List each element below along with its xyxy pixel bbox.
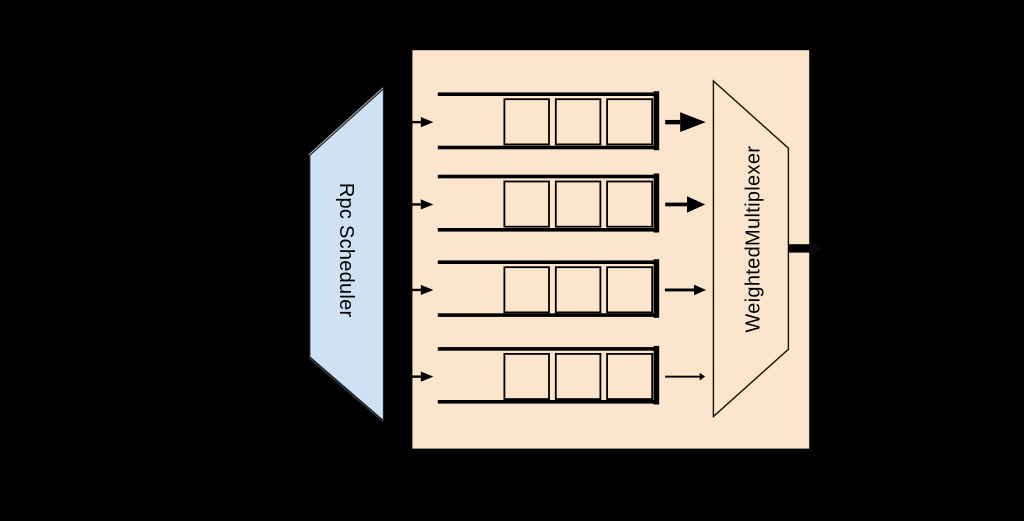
svg-text:Rpc Scheduler: Rpc Scheduler — [335, 183, 357, 318]
svg-text:WeightedMultiplexer: WeightedMultiplexer — [742, 146, 764, 333]
